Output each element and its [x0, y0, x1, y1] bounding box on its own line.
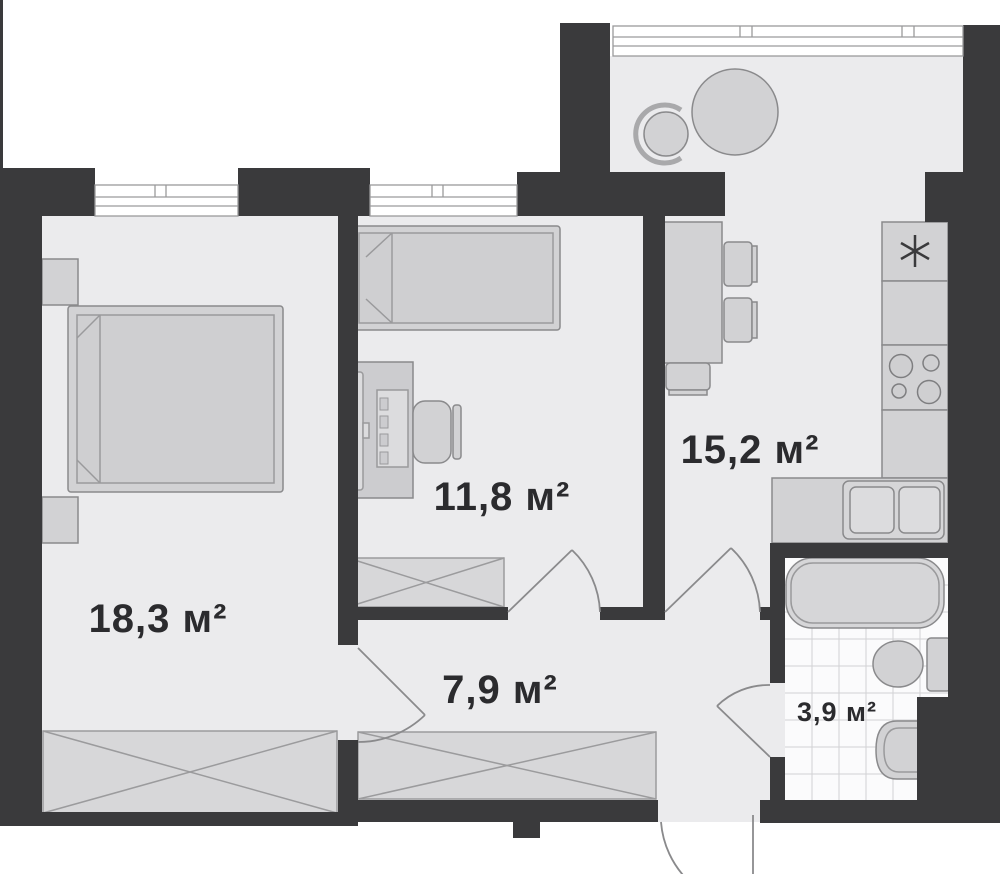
bedroom-bottom-wall [0, 812, 358, 826]
lounge-window [613, 26, 963, 56]
entrance-door [661, 815, 753, 874]
floor-plan: 18,3 м² 11,8 м² 15,2 м² 7,9 м² 3,9 м² [0, 0, 1000, 874]
bathroom-left-wall [770, 757, 785, 800]
kitchen-bathroom-wall [770, 543, 948, 558]
bottom-right-wall [760, 800, 940, 823]
top-wall-pier [0, 168, 95, 216]
single-bed [352, 226, 560, 330]
bedroom-door-opening-floor [338, 645, 358, 740]
bedroom-wardrobe [43, 731, 337, 813]
bathroom-left-wall [770, 558, 785, 683]
room-label-office: 11,8 м² [434, 475, 571, 519]
stove [882, 345, 948, 410]
office-window [370, 185, 517, 216]
room-label-bathroom: 3,9 м² [797, 697, 877, 727]
bathroom-door-opening-floor [770, 683, 785, 757]
toilet [873, 638, 951, 691]
room-label-bedroom: 18,3 м² [89, 597, 228, 641]
kitchen-sink-counter [772, 478, 948, 543]
round-table [692, 69, 778, 155]
top-wall-segment [517, 172, 725, 216]
room-label-kitchen: 15,2 м² [681, 428, 820, 472]
hallway-top-wall [338, 607, 508, 620]
hallway-bottom-wall [345, 800, 658, 822]
kitchen-counter [882, 410, 948, 478]
bedroom-divider-wall [338, 740, 358, 812]
kitchen-table [664, 222, 722, 363]
top-wall-pier [238, 168, 370, 216]
bathtub [786, 558, 944, 628]
kitchen-divider-wall [643, 216, 665, 620]
desk [352, 362, 413, 498]
office-chair [413, 401, 461, 463]
office-wardrobe [348, 558, 504, 607]
entrance-step [513, 822, 540, 838]
bathroom-sink [876, 721, 921, 779]
hallway-top-wall [600, 607, 643, 620]
room-label-hallway: 7,9 м² [442, 668, 558, 712]
monitor-stand [363, 423, 369, 438]
floor-plan-canvas: 18,3 м² 11,8 м² 15,2 м² 7,9 м² 3,9 м² [0, 0, 1000, 874]
bedroom-divider-wall [338, 216, 358, 645]
hallway-wardrobe [358, 732, 656, 799]
bedroom-window [95, 185, 238, 216]
left-wall [0, 168, 42, 826]
fridge [882, 222, 948, 281]
balcony-left-wall [560, 23, 610, 216]
double-bed [68, 306, 283, 492]
kitchen-cabinet [882, 281, 948, 345]
